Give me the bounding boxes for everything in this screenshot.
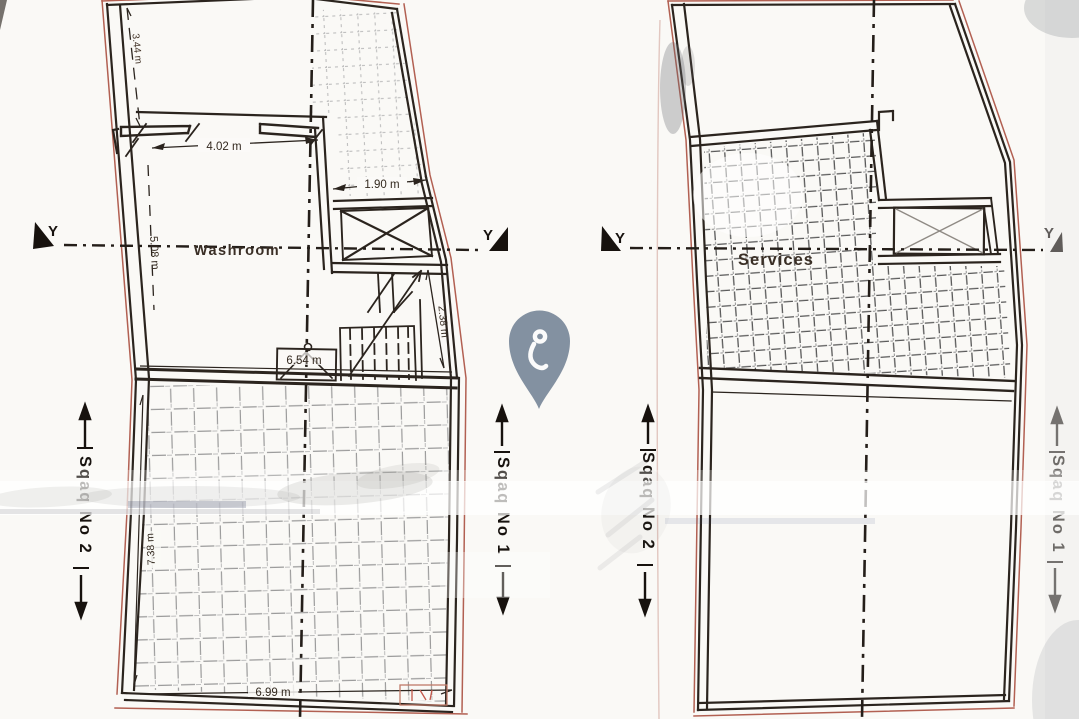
svg-text:Washroom: Washroom [194,243,280,259]
svg-text:Y: Y [615,230,625,247]
svg-text:Y: Y [48,223,58,240]
svg-text:1.90 m: 1.90 m [364,179,399,191]
svg-text:Y: Y [483,227,493,244]
svg-text:6.99 m: 6.99 m [255,687,290,699]
svg-text:7.38 m: 7.38 m [144,533,158,566]
svg-text:6.54 m: 6.54 m [286,355,321,367]
svg-text:4.02 m: 4.02 m [206,141,241,153]
svg-text:Services: Services [738,251,814,269]
svg-text:5.08 m: 5.08 m [147,236,161,270]
